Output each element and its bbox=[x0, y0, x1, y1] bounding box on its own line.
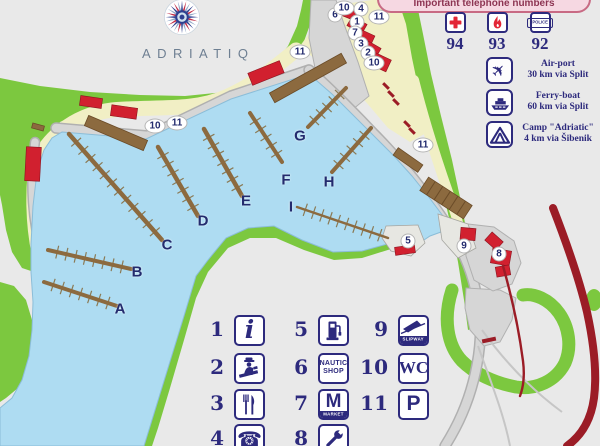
workshop-icon bbox=[318, 424, 349, 446]
police-icon: POLICE bbox=[530, 12, 551, 33]
pier-label: F bbox=[281, 172, 290, 189]
map-marker: 9 bbox=[457, 239, 472, 254]
ferry-label: Ferry-boat bbox=[518, 91, 598, 102]
legend-number: 6 bbox=[274, 355, 308, 379]
map-marker: 11 bbox=[290, 45, 311, 60]
marina-map-page: ABCDEFGHI 61041117321011101111598 ADRIAT… bbox=[0, 0, 600, 446]
parking-icon: P bbox=[398, 389, 429, 420]
camp-distance: 4 km via Šibenik bbox=[518, 134, 598, 145]
nautic-shop-icon: NAUTICSHOP bbox=[318, 353, 349, 384]
pier-label: C bbox=[162, 237, 173, 254]
pier-label: A bbox=[115, 301, 126, 318]
wc-icon: WC bbox=[398, 353, 429, 384]
map-marker: 5 bbox=[401, 234, 416, 249]
pier-label: H bbox=[324, 174, 335, 191]
camp-info: Camp "Adriatic" 4 km via Šibenik bbox=[486, 121, 600, 151]
legend-number: 1 bbox=[190, 317, 224, 341]
map-marker: 10 bbox=[364, 56, 385, 71]
logo-wordmark: ADRIATIQ bbox=[136, 46, 228, 61]
legend-number: 3 bbox=[190, 391, 224, 415]
camp-icon bbox=[486, 121, 513, 148]
slipway-icon: SLIPWAY bbox=[398, 315, 429, 346]
fire-entry: 93 bbox=[474, 12, 520, 54]
customs-officer-icon bbox=[234, 353, 265, 384]
airport-label: Air-port bbox=[518, 59, 598, 70]
fire-icon bbox=[487, 12, 508, 33]
legend-number: 10 bbox=[354, 355, 388, 379]
police-icon-label: POLICE bbox=[532, 20, 548, 24]
map-marker: 10 bbox=[145, 119, 166, 134]
legend-number: 11 bbox=[354, 391, 388, 415]
pier-label: B bbox=[132, 264, 143, 281]
phone-panel-title: Important telephone numbers bbox=[379, 0, 589, 9]
restaurant-icon bbox=[234, 389, 265, 420]
pier-label: I bbox=[289, 199, 293, 216]
camp-label: Camp "Adriatic" bbox=[518, 123, 598, 134]
fire-number: 93 bbox=[474, 34, 520, 54]
ferry-distance: 60 km via Split bbox=[518, 102, 598, 113]
info-icon: i bbox=[234, 315, 265, 346]
pier-label: D bbox=[198, 213, 209, 230]
fuel-station-icon bbox=[318, 315, 349, 346]
police-number: 92 bbox=[517, 34, 563, 54]
pier-label: G bbox=[294, 128, 306, 145]
legend-number: 7 bbox=[274, 391, 308, 415]
ferry-info: Ferry-boat 60 km via Split bbox=[486, 89, 600, 119]
airport-distance: 30 km via Split bbox=[518, 70, 598, 81]
telephone-icon: ☎ bbox=[234, 424, 265, 446]
market-icon: MMARKET bbox=[318, 389, 349, 420]
ferry-icon bbox=[486, 89, 513, 116]
first-aid-icon bbox=[445, 12, 466, 33]
police-entry: POLICE 92 bbox=[517, 12, 563, 54]
pier-label: E bbox=[241, 193, 251, 210]
legend-number: 9 bbox=[354, 317, 388, 341]
airplane-icon: ✈ bbox=[486, 57, 513, 84]
compass-rose-icon bbox=[159, 0, 205, 38]
first-aid-entry: 94 bbox=[432, 12, 478, 54]
map-marker: 11 bbox=[413, 138, 434, 153]
legend-number: 8 bbox=[274, 426, 308, 446]
legend-number: 2 bbox=[190, 355, 224, 379]
map-marker: 10 bbox=[334, 1, 355, 16]
legend-number: 5 bbox=[274, 317, 308, 341]
map-marker: 8 bbox=[492, 247, 507, 262]
adriatiq-logo: ADRIATIQ bbox=[136, 0, 228, 61]
airport-info: ✈ Air-port 30 km via Split bbox=[486, 57, 600, 87]
first-aid-number: 94 bbox=[432, 34, 478, 54]
legend-number: 4 bbox=[190, 426, 224, 446]
map-marker: 11 bbox=[167, 116, 188, 131]
